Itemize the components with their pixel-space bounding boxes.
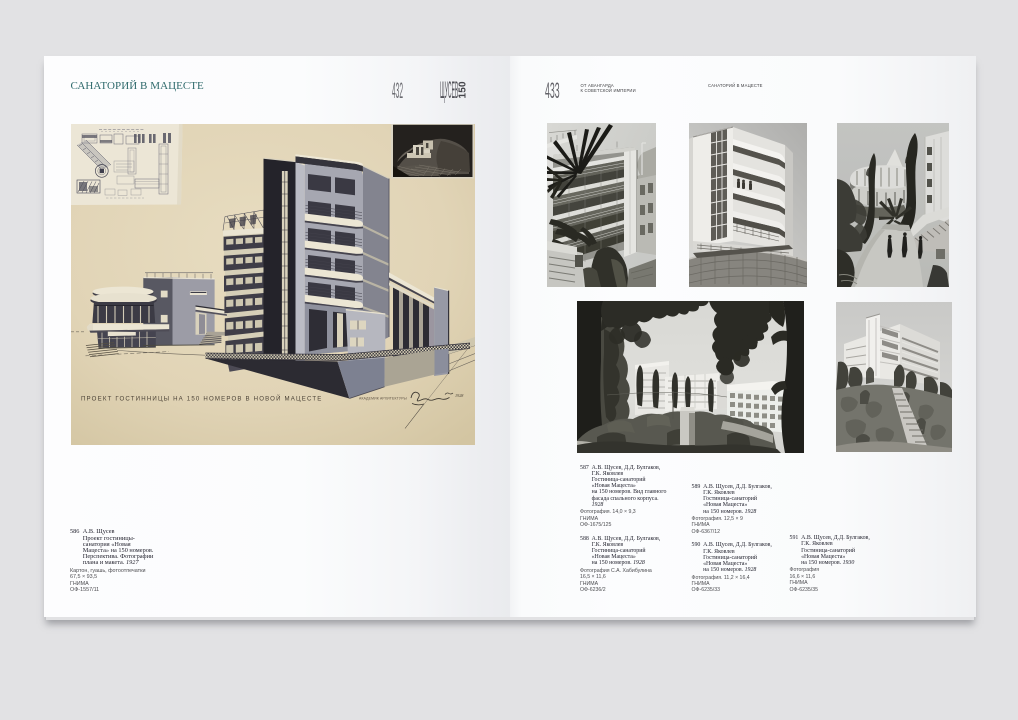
svg-text:ПРОЕКТ ГОСТИННИЦЫ НА 150 НОМЕР: ПРОЕКТ ГОСТИННИЦЫ НА 150 НОМЕРОВ В НОВОЙ… [81, 394, 323, 402]
svg-text:1928: 1928 [455, 393, 464, 398]
svg-text:АКАДЕМИК АРХИТЕКТУРЫ: АКАДЕМИК АРХИТЕКТУРЫ [359, 396, 407, 400]
